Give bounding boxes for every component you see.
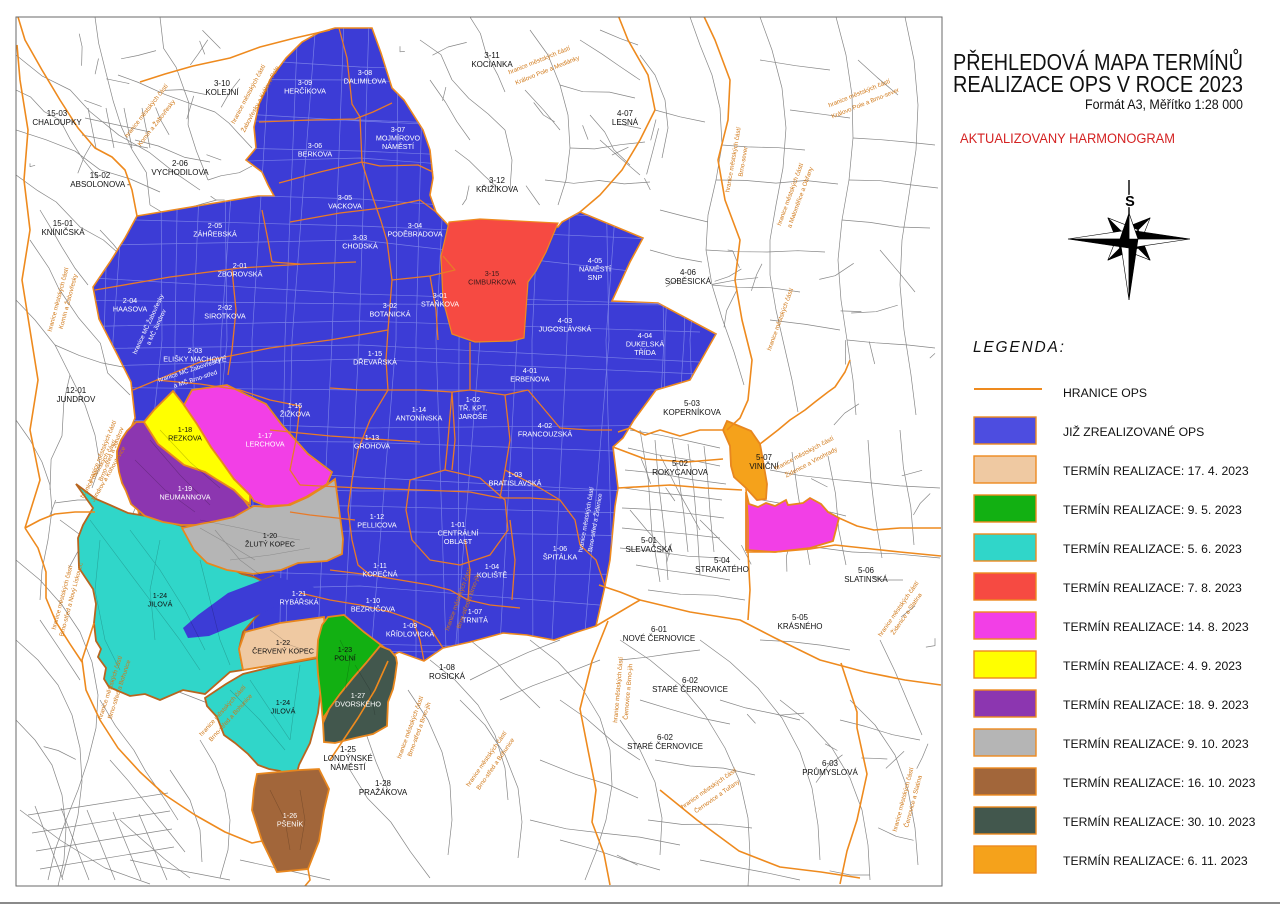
svg-text:LEGENDA:: LEGENDA: — [973, 339, 1066, 356]
svg-text:TERMÍN REALIZACE: 4. 9. 2023: TERMÍN REALIZACE: 4. 9. 2023 — [1063, 658, 1242, 673]
svg-text:TERMÍN REALIZACE: 14. 8. 2023: TERMÍN REALIZACE: 14. 8. 2023 — [1063, 619, 1249, 634]
svg-text:REALIZACE OPS V ROCE 2023: REALIZACE OPS V ROCE 2023 — [953, 71, 1243, 97]
svg-text:TERMÍN REALIZACE: 18. 9. 2023: TERMÍN REALIZACE: 18. 9. 2023 — [1063, 697, 1249, 712]
svg-text:TERMÍN REALIZACE: 30. 10. 2023: TERMÍN REALIZACE: 30. 10. 2023 — [1063, 814, 1256, 829]
svg-text:HRANICE OPS: HRANICE OPS — [1063, 386, 1147, 400]
svg-text:TERMÍN REALIZACE: 9. 10. 2023: TERMÍN REALIZACE: 9. 10. 2023 — [1063, 736, 1249, 751]
svg-text:TERMÍN REALIZACE: 9. 5. 2023: TERMÍN REALIZACE: 9. 5. 2023 — [1063, 502, 1242, 517]
svg-text:TERMÍN REALIZACE: 5. 6. 2023: TERMÍN REALIZACE: 5. 6. 2023 — [1063, 541, 1242, 556]
svg-text:TERMÍN REALIZACE: 17. 4. 2023: TERMÍN REALIZACE: 17. 4. 2023 — [1063, 463, 1249, 478]
svg-text:TERMÍN REALIZACE: 16. 10. 2023: TERMÍN REALIZACE: 16. 10. 2023 — [1063, 775, 1256, 790]
svg-text:TERMÍN REALIZACE: 7. 8. 2023: TERMÍN REALIZACE: 7. 8. 2023 — [1063, 580, 1242, 595]
svg-text:S: S — [1125, 194, 1135, 210]
svg-text:AKTUALIZOVANY HARMONOGRAM: AKTUALIZOVANY HARMONOGRAM — [960, 131, 1175, 146]
svg-text:Formát A3, Měřítko 1:28 000: Formát A3, Měřítko 1:28 000 — [1085, 97, 1243, 112]
svg-text:JIŽ ZREALIZOVANÉ OPS: JIŽ ZREALIZOVANÉ OPS — [1063, 424, 1204, 439]
svg-text:TERMÍN REALIZACE: 6. 11. 2023: TERMÍN REALIZACE: 6. 11. 2023 — [1063, 853, 1248, 868]
